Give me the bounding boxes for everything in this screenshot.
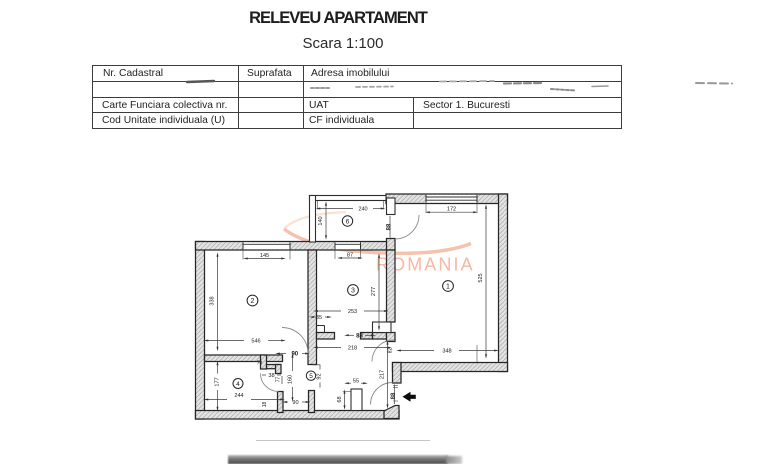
svg-text:92: 92 <box>317 373 323 379</box>
svg-text:4: 4 <box>236 381 240 388</box>
svg-text:3: 3 <box>351 288 355 295</box>
svg-text:1: 1 <box>446 284 450 291</box>
svg-text:244: 244 <box>234 393 243 399</box>
svg-text:18: 18 <box>262 402 268 408</box>
svg-text:70: 70 <box>257 361 263 367</box>
svg-text:88: 88 <box>356 334 363 340</box>
svg-text:5: 5 <box>309 373 313 380</box>
svg-text:87: 87 <box>347 252 353 258</box>
svg-text:160: 160 <box>288 375 294 384</box>
svg-text:525: 525 <box>478 273 484 282</box>
svg-text:218: 218 <box>348 346 357 352</box>
svg-text:240: 240 <box>358 207 367 213</box>
svg-text:145: 145 <box>260 253 269 259</box>
svg-text:253: 253 <box>348 309 357 315</box>
svg-text:90: 90 <box>292 400 298 406</box>
svg-text:55: 55 <box>353 378 359 384</box>
svg-text:88: 88 <box>391 392 397 399</box>
svg-text:140: 140 <box>318 216 324 225</box>
svg-text:277: 277 <box>371 287 377 296</box>
svg-text:338: 338 <box>210 296 216 305</box>
svg-text:35: 35 <box>316 315 322 321</box>
svg-text:217: 217 <box>380 370 386 379</box>
svg-text:88: 88 <box>387 223 393 230</box>
svg-text:38: 38 <box>268 373 274 379</box>
svg-text:2: 2 <box>251 298 255 305</box>
svg-text:68: 68 <box>337 396 343 402</box>
svg-text:348: 348 <box>442 349 451 355</box>
svg-text:6: 6 <box>346 219 350 226</box>
svg-text:82: 82 <box>388 348 394 354</box>
svg-text:546: 546 <box>251 339 260 345</box>
svg-text:177: 177 <box>215 377 221 386</box>
svg-text:77: 77 <box>276 377 282 383</box>
svg-text:90: 90 <box>291 352 298 358</box>
svg-text:172: 172 <box>447 207 456 213</box>
